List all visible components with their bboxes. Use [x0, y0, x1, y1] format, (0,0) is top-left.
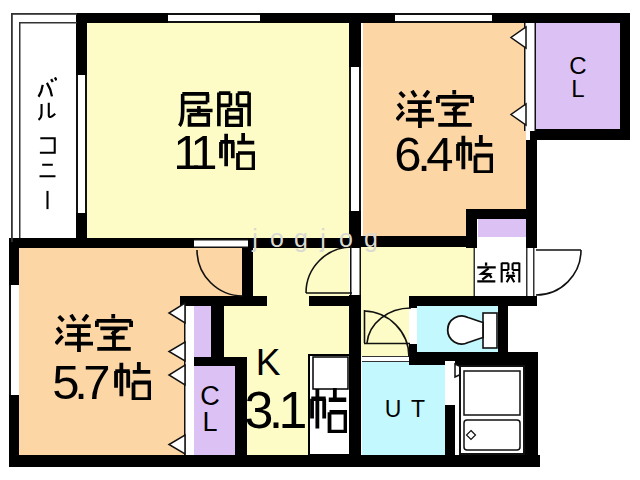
svg-text:U: U [385, 396, 402, 422]
svg-text:L: L [571, 75, 584, 102]
svg-text:o: o [339, 224, 353, 252]
svg-text:o: o [270, 224, 284, 252]
svg-text:1: 1 [190, 125, 217, 179]
svg-text:L: L [202, 407, 217, 437]
svg-text:j: j [319, 224, 326, 252]
svg-text:j: j [251, 224, 258, 252]
svg-text:g: g [364, 224, 378, 252]
svg-text:g: g [294, 224, 308, 252]
svg-text:K: K [256, 342, 281, 383]
svg-text:7: 7 [83, 355, 110, 409]
svg-text:4: 4 [426, 127, 453, 181]
svg-text:1: 1 [279, 381, 308, 439]
svg-text:T: T [411, 396, 425, 422]
